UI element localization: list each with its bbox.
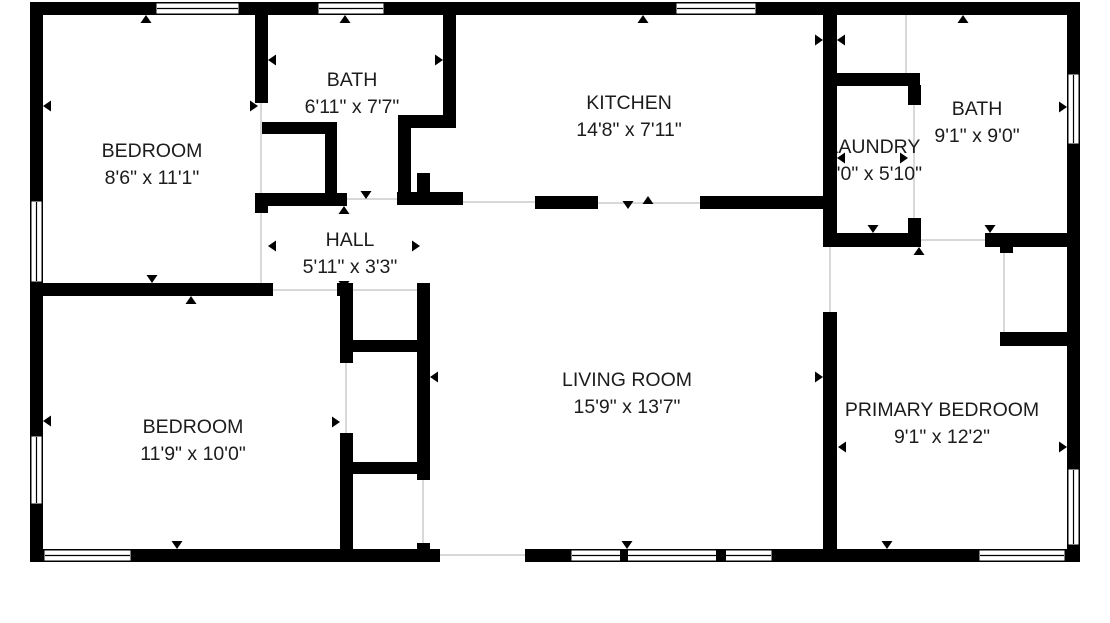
wall-segment [1000,332,1067,346]
room-name: BEDROOM [143,416,244,438]
room-name: PRIMARY BEDROOM [845,399,1039,421]
room-name: BATH [952,98,1003,120]
wall-segment [340,462,430,474]
room-name: HALL [326,229,375,251]
room-name: BEDROOM [102,140,203,162]
background [0,0,1110,623]
wall-segment [417,283,430,480]
room-name: LIVING ROOM [562,369,692,391]
wall-segment [30,283,273,296]
floor-plan-canvas: BEDROOM8'6" x 11'1"BATH6'11" x 7'7"KITCH… [0,0,1110,623]
wall-segment [258,193,347,206]
wall-segment [985,233,1067,247]
wall-segment [340,433,353,553]
wall-segment [443,15,456,128]
room-name: BATH [327,69,378,91]
room-dimensions: 15'9" x 13'7" [574,396,681,418]
wall-segment [340,340,430,352]
wall-segment [700,196,830,209]
room-dimensions: 5'11" x 3'3" [303,256,398,278]
room-dimensions: 6'11" x 7'7" [305,96,400,118]
wall-segment [823,233,920,247]
room-dimensions: 8'6" x 11'1" [105,167,200,189]
room-dimensions: 11'9" x 10'0" [140,443,246,465]
room-dimensions: 9'1" x 9'0" [934,125,1019,147]
wall-segment [417,543,430,553]
wall-segment [823,73,920,86]
wall-segment [417,173,430,205]
room-dimensions: 9'1" x 12'2" [894,426,990,448]
wall-segment [398,115,411,205]
room-dimensions: 14'8" x 7'11" [576,119,682,141]
wall-segment [255,15,268,103]
window-mullion [716,549,726,562]
wall-segment [823,312,837,552]
wall-segment [823,15,837,242]
room-name: LAUNDRY [828,136,921,158]
wall-segment [535,196,598,209]
room-dimensions: 5'0" x 5'10" [826,163,922,185]
wall-segment [908,85,921,105]
room-name: KITCHEN [586,92,672,114]
floor-plan-svg: BEDROOM8'6" x 11'1"BATH6'11" x 7'7"KITCH… [0,0,1110,623]
wall-segment [1000,243,1013,253]
window-mullion [620,549,628,562]
